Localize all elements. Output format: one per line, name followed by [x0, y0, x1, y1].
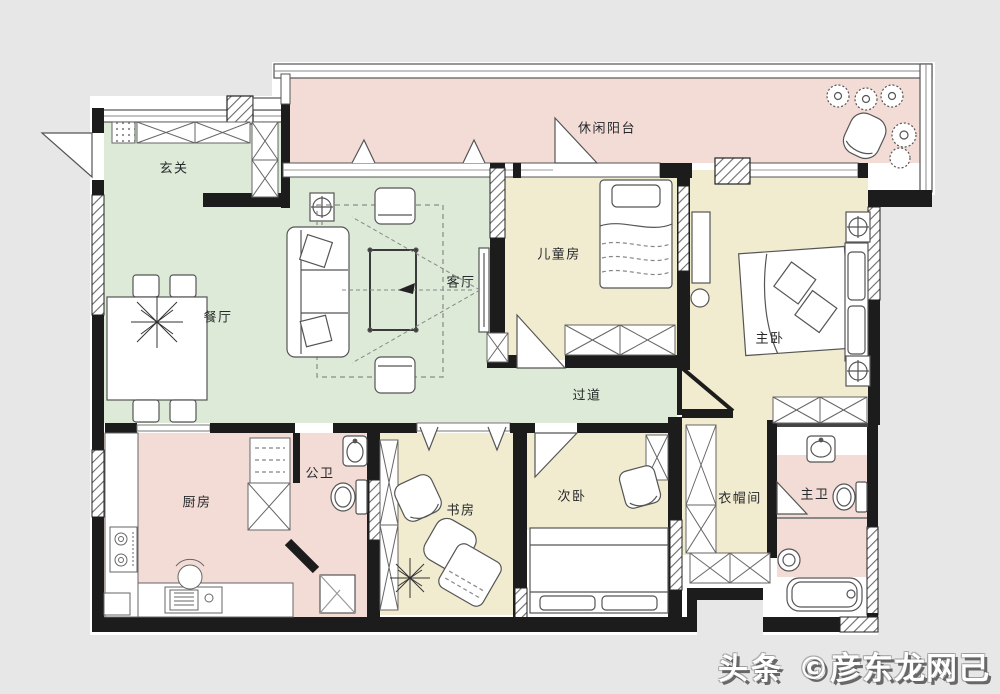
- stove-icon: [110, 527, 137, 572]
- watermark-author: ©彦东龙网己: [798, 643, 990, 688]
- master-bed: [739, 246, 852, 355]
- kids-bed: [600, 180, 672, 288]
- floor-plan-canvas: [0, 0, 1000, 694]
- entry-door-swing: [42, 133, 92, 177]
- room-floor-leisure-balcony: [283, 78, 920, 163]
- master-washbasin-icon: [807, 436, 835, 462]
- dining-table-set: [107, 275, 207, 422]
- second-bed: [530, 528, 668, 613]
- bathtub-icon: [787, 578, 862, 611]
- table-plant-icon: [131, 296, 183, 348]
- sofa: [287, 227, 349, 357]
- armchair: [375, 188, 415, 224]
- nightstand-lamp-icon: [846, 212, 870, 242]
- washbasin-icon: [343, 436, 367, 466]
- dresser: [692, 212, 710, 283]
- washer-icon: [320, 575, 355, 613]
- kids-room-furniture: [600, 180, 672, 288]
- watermark-brand: 头条: [718, 644, 784, 688]
- floor-plan-page: 休闲阳台 玄关 餐厅 客厅 过道 儿童房 主卧 厨房 公卫 书房 次卧 衣帽间 …: [0, 0, 1000, 694]
- master-toilet-icon: [833, 482, 867, 512]
- room-floor-corridor: [490, 368, 677, 423]
- round-basin-icon: [778, 549, 800, 571]
- watermark: 头条 ©彦东龙网己: [718, 643, 990, 688]
- stool-icon: [691, 289, 709, 307]
- floor-plant-icon: [390, 558, 430, 598]
- shoe-cabinet: [112, 122, 135, 143]
- toilet-icon: [331, 480, 367, 514]
- kitchen-counter-left: [105, 433, 138, 617]
- nightstand-lamp-icon2: [846, 356, 870, 386]
- armchair2: [375, 357, 415, 393]
- headboard: [845, 243, 868, 361]
- kitchen-sink-icon: [165, 587, 222, 613]
